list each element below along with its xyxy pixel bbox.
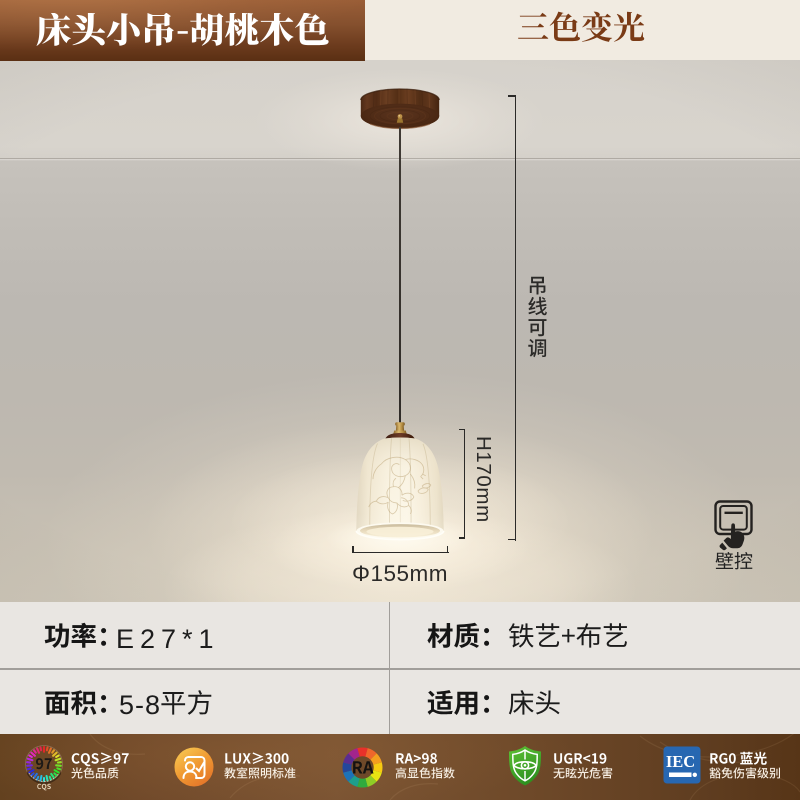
- svg-text:IEC: IEC: [666, 752, 695, 771]
